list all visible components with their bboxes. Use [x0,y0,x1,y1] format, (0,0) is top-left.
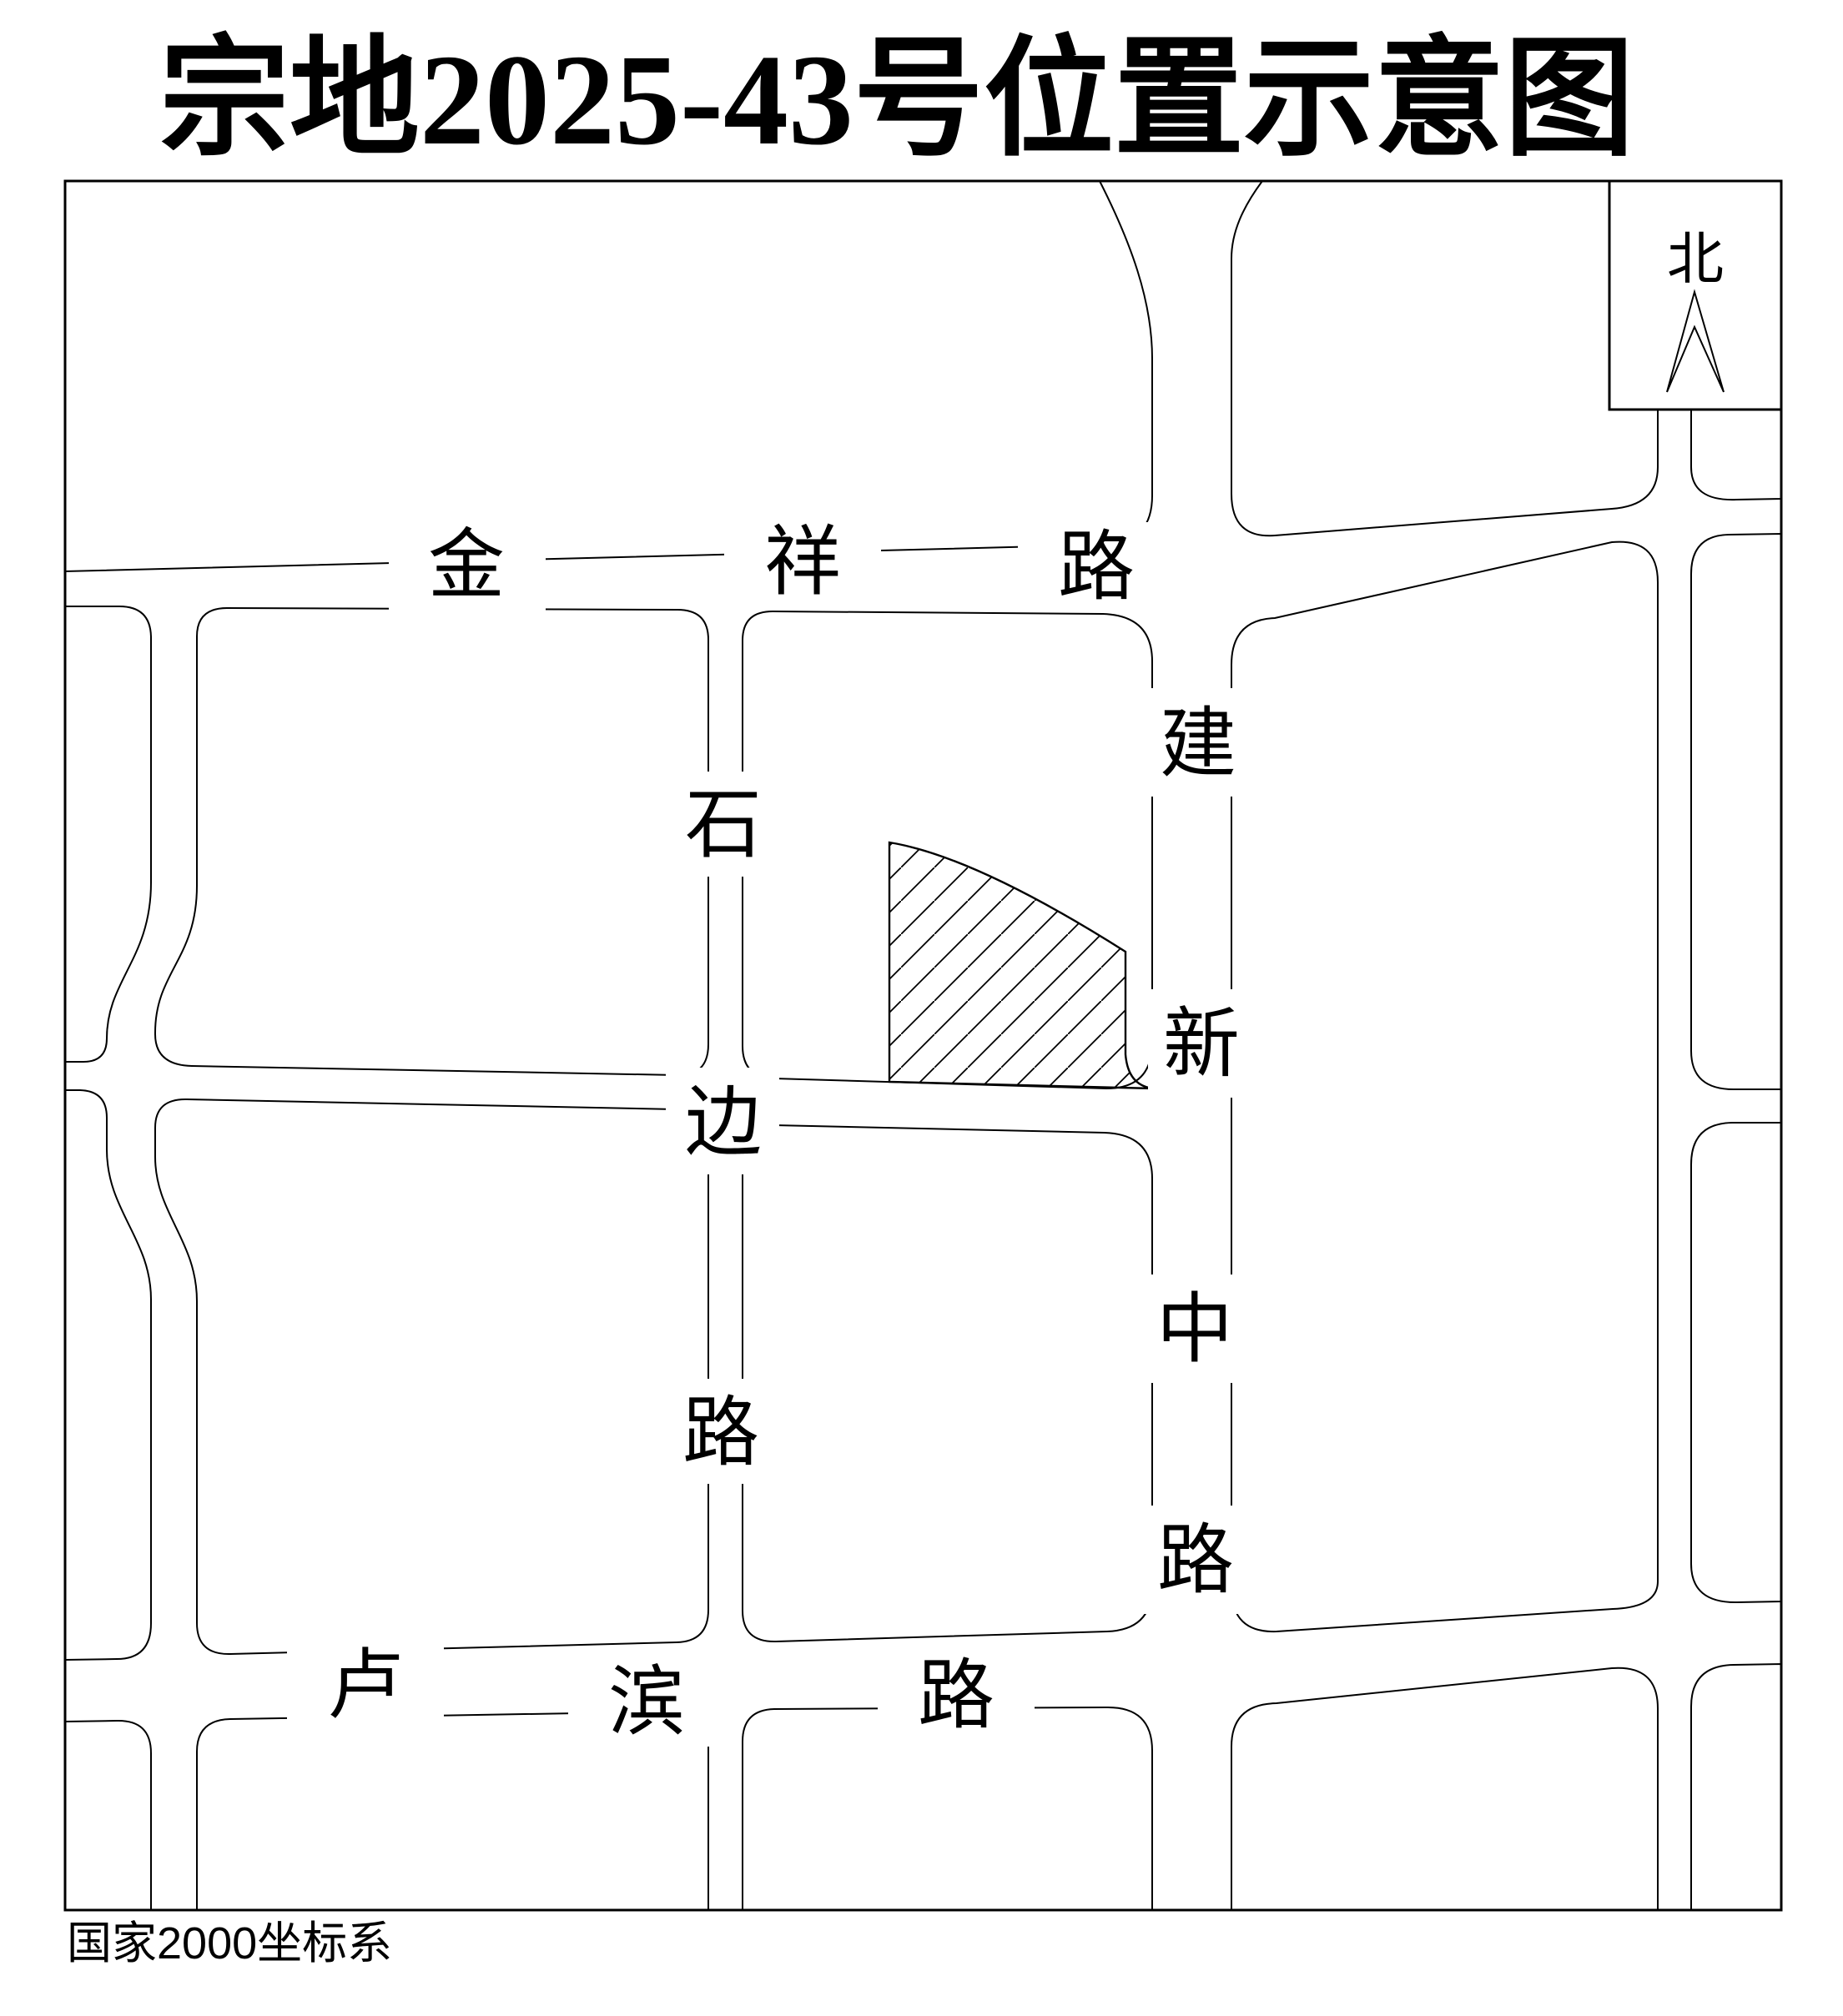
city-block [65,181,1152,571]
city-block [65,606,151,1062]
parcel-location-sketch: 宗地2025-43号位置示意图 北 [0,0,1843,2016]
city-block [743,1125,1152,1641]
road-label-shibian-2: 边 [685,1080,762,1165]
city-block [1691,410,1781,500]
city-block [65,1721,151,1910]
road-label-jinxiang-1: 金 [428,523,505,608]
road-label-lubin-2: 滨 [608,1660,685,1745]
road-label-shibian-1: 石 [685,782,762,867]
city-block [1691,1664,1781,1910]
city-block [1231,181,1658,535]
coordinate-system-note: 国家2000坐标系 [67,1918,392,1968]
location-map: 宗地2025-43号位置示意图 北 [0,0,1843,2016]
road-label-jianxinzhong-2: 新 [1163,1002,1240,1087]
north-label: 北 [1667,228,1724,291]
city-block [155,1099,708,1654]
road-label-jinxiang-3: 路 [1058,525,1135,610]
north-indicator: 北 [1609,181,1781,410]
city-block [1231,542,1658,1632]
city-block [1691,534,1781,1089]
city-block [65,1090,151,1660]
road-label-jianxinzhong-4: 路 [1157,1518,1234,1603]
road-label-lubin-1: 卢 [327,1643,404,1728]
road-label-shibian-3: 路 [682,1390,759,1476]
road-label-jinxiang-2: 祥 [764,520,841,605]
page-title: 宗地2025-43号位置示意图 [159,28,1634,172]
road-label-jianxinzhong-3: 中 [1156,1287,1233,1372]
road-label-jianxinzhong-1: 建 [1160,701,1236,787]
city-block [1231,1668,1658,1910]
city-block [1691,1123,1781,1602]
city-block [155,608,708,1075]
road-label-lubin-3: 路 [918,1653,995,1738]
